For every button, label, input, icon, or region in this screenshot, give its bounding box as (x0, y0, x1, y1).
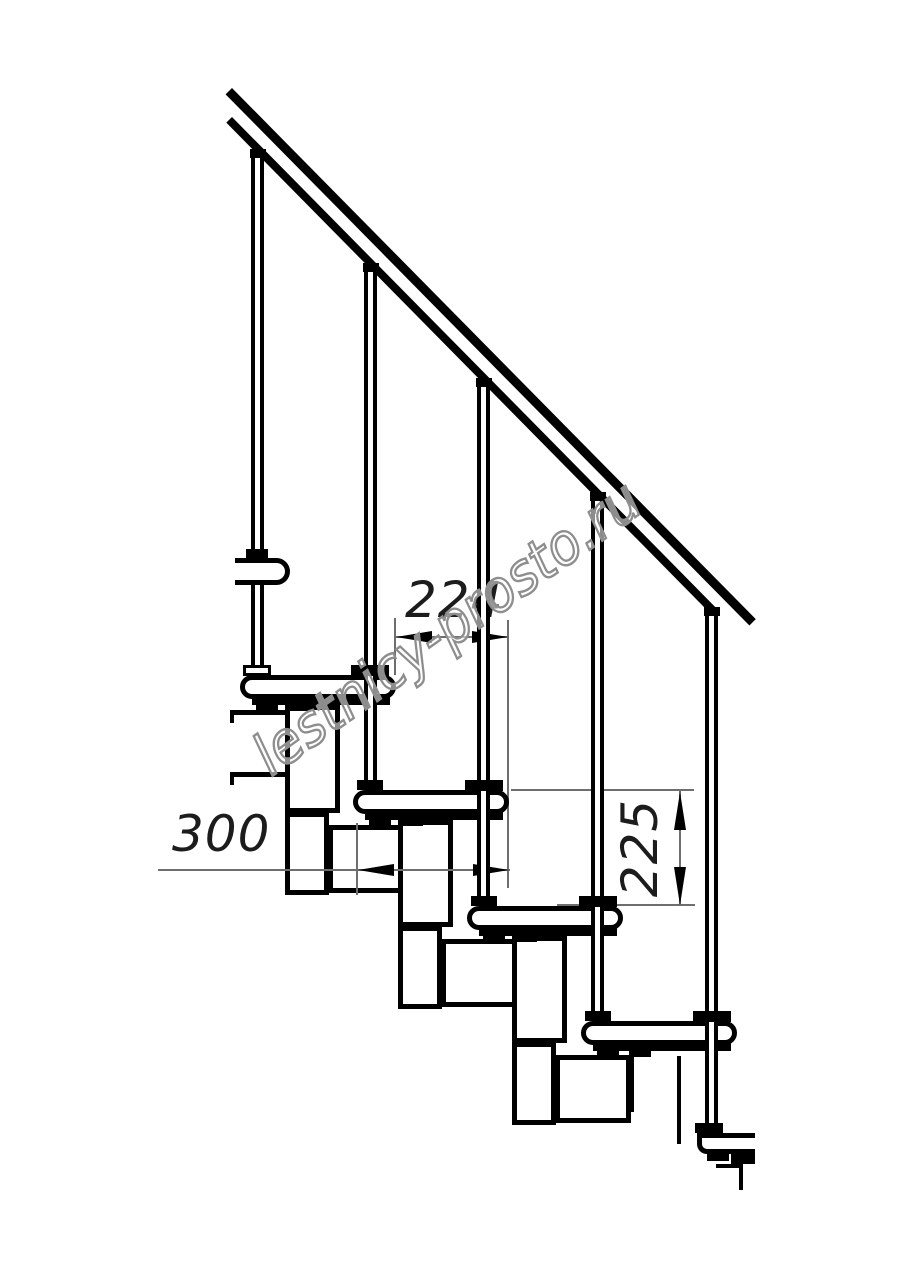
baluster-3 (477, 386, 490, 906)
floor-support (697, 1133, 755, 1154)
module-block (398, 926, 442, 1009)
tread-mount-nub (483, 934, 505, 942)
dimension-label-riser-height: 225 (615, 798, 665, 898)
module-block (555, 1055, 631, 1123)
dim-line-300 (158, 869, 510, 871)
floor-support-nub (707, 1152, 729, 1161)
tread-mount-nub (369, 818, 391, 826)
tread-mount-nub (288, 703, 310, 711)
baluster-1 (251, 157, 264, 675)
baluster-mount (579, 896, 617, 907)
staircase-technical-drawing: 224 300 225 (0, 0, 914, 1280)
handrail-bottom-line (226, 117, 718, 615)
floor-cut-line (739, 1164, 743, 1190)
module-block (398, 820, 453, 927)
module-block (285, 812, 329, 895)
baluster-base (243, 665, 271, 676)
arrow-225-up (674, 792, 686, 830)
baluster-base (695, 1123, 723, 1133)
handrail-top-line (226, 88, 756, 625)
module-block (285, 705, 340, 813)
baluster-5 (705, 615, 718, 1133)
arrow-300-left (358, 864, 394, 876)
module-block (441, 939, 517, 1007)
module-partial-line (630, 1056, 634, 1112)
tread-mount-nub (401, 818, 423, 826)
upper-flight-cut-lines (230, 710, 285, 777)
ext-line-224-300-right (507, 620, 509, 888)
tread-mount-nub (256, 703, 278, 711)
watermark-layer: lestnicy-prosto.ru (0, 0, 914, 1280)
arrow-225-down (674, 867, 686, 905)
module-partial-line (677, 1056, 681, 1144)
baluster-4 (591, 500, 604, 1021)
cut-tick (230, 714, 234, 723)
baluster-mount (351, 665, 389, 676)
arrow-224-left (396, 631, 432, 643)
baluster-base (471, 896, 497, 906)
tread-mount-nub (515, 934, 537, 942)
tread-mount-nub (597, 1049, 619, 1057)
ext-line-300-left (356, 823, 358, 895)
module-block (328, 825, 404, 893)
baluster-mount (465, 780, 503, 791)
upper-flight-tread (235, 558, 290, 585)
baluster-base (585, 1011, 611, 1021)
baluster-2 (364, 271, 377, 790)
module-block (512, 1042, 556, 1125)
floor-support-nub (731, 1154, 755, 1164)
tread-mount-nub (629, 1049, 651, 1057)
cut-tick (230, 776, 234, 785)
baluster-mount (693, 1011, 731, 1022)
module-block (512, 936, 567, 1043)
ext-line-224-left (394, 618, 396, 675)
dimension-label-tread-depth: 300 (172, 809, 270, 859)
baluster-base (357, 780, 383, 790)
